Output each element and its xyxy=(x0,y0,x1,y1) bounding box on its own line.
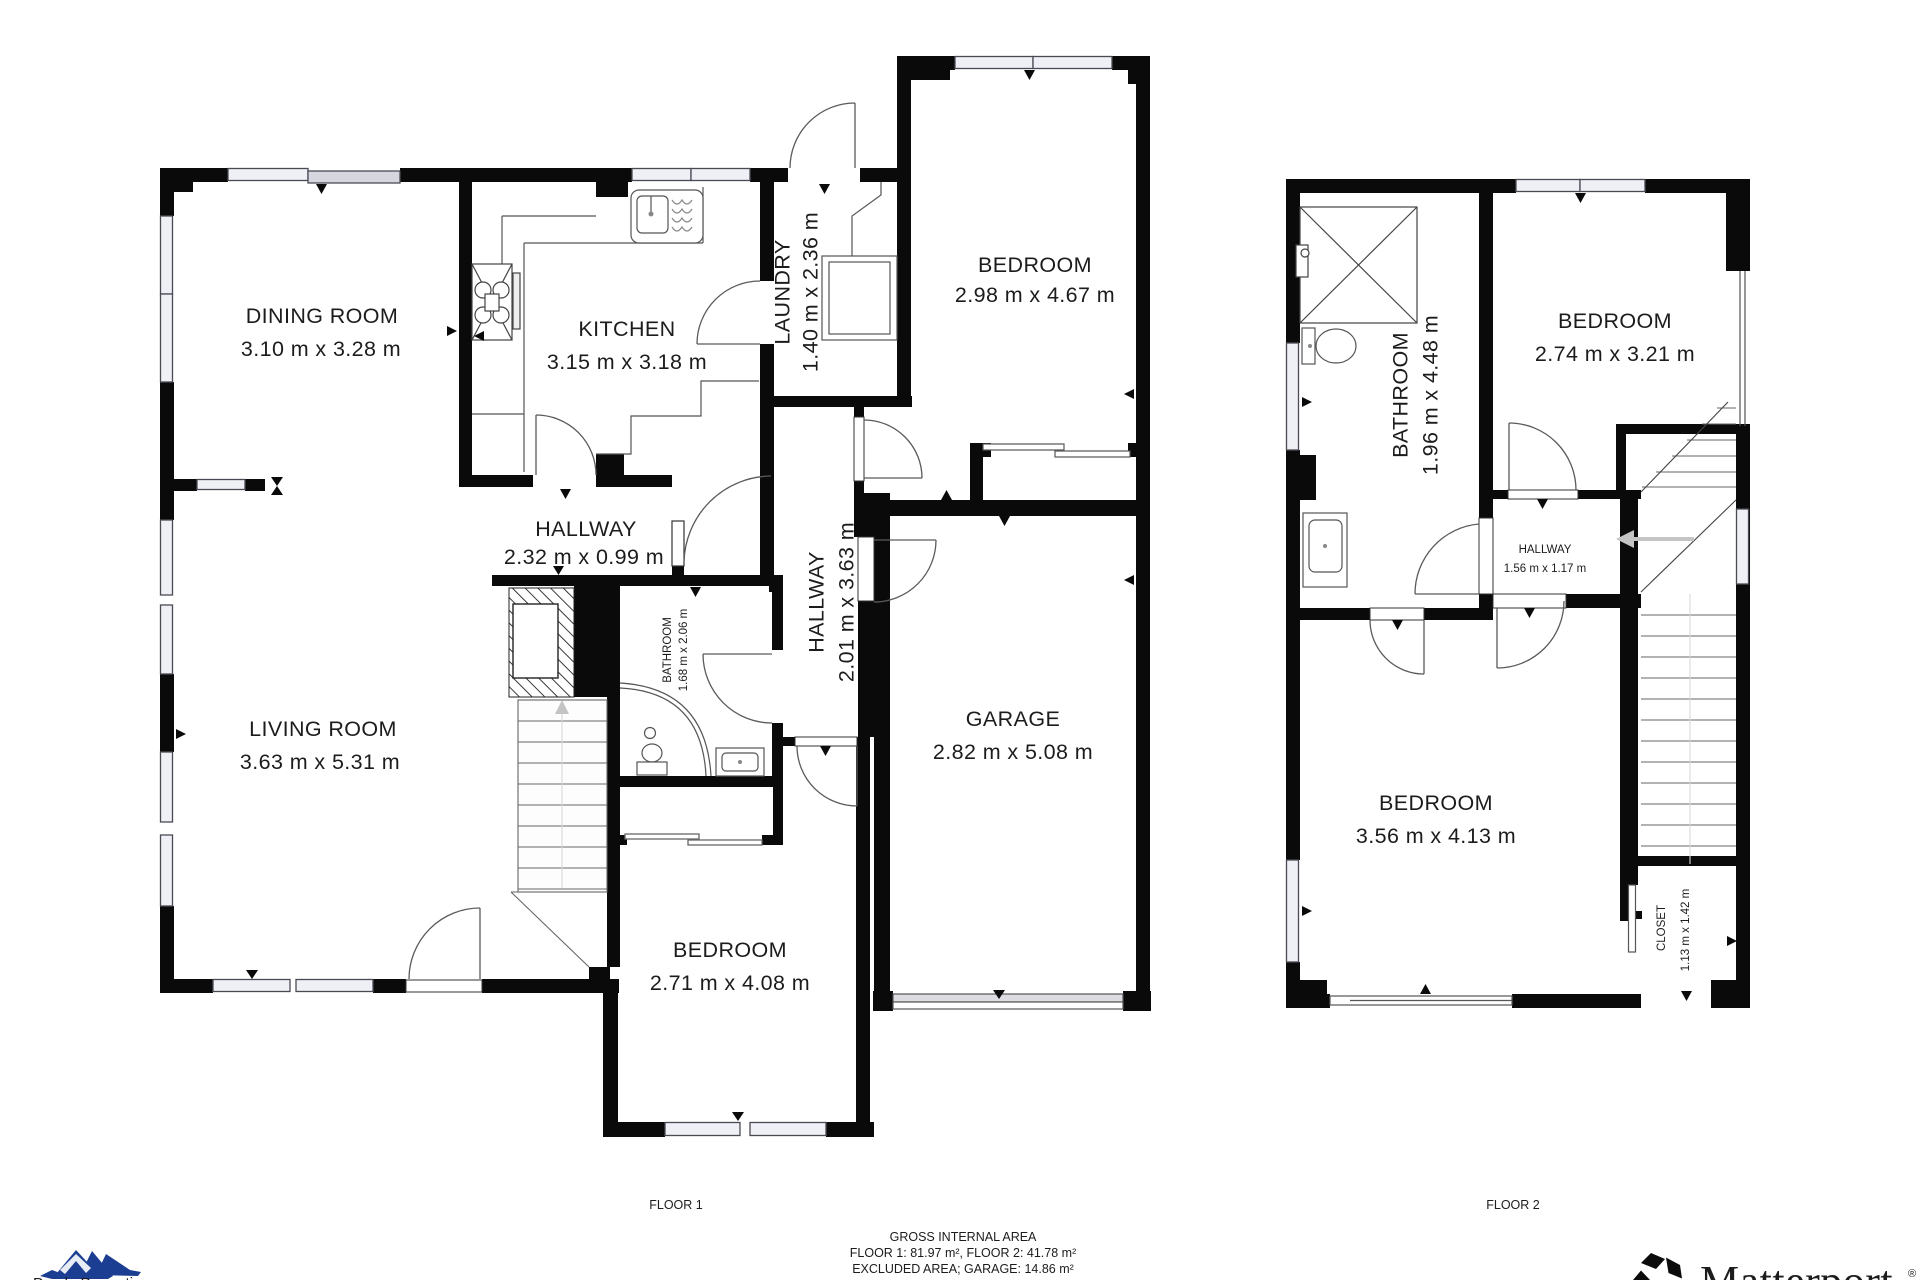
svg-text:HALLWAY: HALLWAY xyxy=(805,551,829,653)
svg-text:3.56 m x 4.13 m: 3.56 m x 4.13 m xyxy=(1356,824,1516,848)
svg-text:Matterport: Matterport xyxy=(1700,1257,1893,1280)
svg-text:2.01 m x 3.63 m: 2.01 m x 3.63 m xyxy=(835,522,859,682)
svg-text:2.74 m x 3.21 m: 2.74 m x 3.21 m xyxy=(1535,342,1695,366)
svg-text:1.68 m x 2.06 m: 1.68 m x 2.06 m xyxy=(678,609,690,691)
svg-text:KITCHEN: KITCHEN xyxy=(578,317,675,341)
svg-text:2.32 m x 0.99 m: 2.32 m x 0.99 m xyxy=(504,545,664,569)
svg-text:FLOOR 1: FLOOR 1 xyxy=(649,1198,703,1212)
svg-text:HALLWAY: HALLWAY xyxy=(535,517,637,541)
svg-text:LIVING ROOM: LIVING ROOM xyxy=(249,717,397,741)
svg-text:BEDROOM: BEDROOM xyxy=(978,253,1092,277)
svg-text:2.98 m x 4.67 m: 2.98 m x 4.67 m xyxy=(955,283,1115,307)
svg-text:3.15 m x 3.18 m: 3.15 m x 3.18 m xyxy=(547,350,707,374)
svg-text:1.56 m x 1.17 m: 1.56 m x 1.17 m xyxy=(1504,563,1586,575)
svg-text:EXCLUDED AREA; GARAGE: 14.86 m: EXCLUDED AREA; GARAGE: 14.86 m² xyxy=(852,1262,1074,1276)
svg-text:Purple Properties: Purple Properties xyxy=(33,1275,149,1280)
svg-text:BEDROOM: BEDROOM xyxy=(1558,309,1672,333)
svg-text:1.13 m x 1.42 m: 1.13 m x 1.42 m xyxy=(1680,889,1692,971)
svg-text:FLOOR 1: 81.97 m², FLOOR 2: 41: FLOOR 1: 81.97 m², FLOOR 2: 41.78 m² xyxy=(850,1246,1076,1260)
svg-text:2.71 m x 4.08 m: 2.71 m x 4.08 m xyxy=(650,971,810,995)
svg-text:BEDROOM: BEDROOM xyxy=(673,938,787,962)
svg-text:1.96 m x 4.48 m: 1.96 m x 4.48 m xyxy=(1419,315,1443,475)
svg-text:HALLWAY: HALLWAY xyxy=(1519,544,1572,556)
svg-text:BATHROOM: BATHROOM xyxy=(1389,332,1413,458)
svg-text:3.10 m x 3.28 m: 3.10 m x 3.28 m xyxy=(241,337,401,361)
svg-text:2.82 m x 5.08 m: 2.82 m x 5.08 m xyxy=(933,740,1093,764)
svg-text:DINING ROOM: DINING ROOM xyxy=(246,304,399,328)
svg-text:3.63 m x 5.31 m: 3.63 m x 5.31 m xyxy=(240,750,400,774)
svg-text:GROSS INTERNAL AREA: GROSS INTERNAL AREA xyxy=(890,1230,1037,1244)
svg-text:CLOSET: CLOSET xyxy=(1656,905,1668,951)
svg-text:GARAGE: GARAGE xyxy=(966,707,1060,731)
svg-text:BEDROOM: BEDROOM xyxy=(1379,791,1493,815)
svg-text:BATHROOM: BATHROOM xyxy=(662,617,674,683)
svg-text:FLOOR 2: FLOOR 2 xyxy=(1486,1198,1540,1212)
svg-text:LAUNDRY: LAUNDRY xyxy=(771,239,795,344)
svg-text:®: ® xyxy=(1908,1268,1916,1280)
svg-text:1.40 m x 2.36 m: 1.40 m x 2.36 m xyxy=(799,212,823,372)
